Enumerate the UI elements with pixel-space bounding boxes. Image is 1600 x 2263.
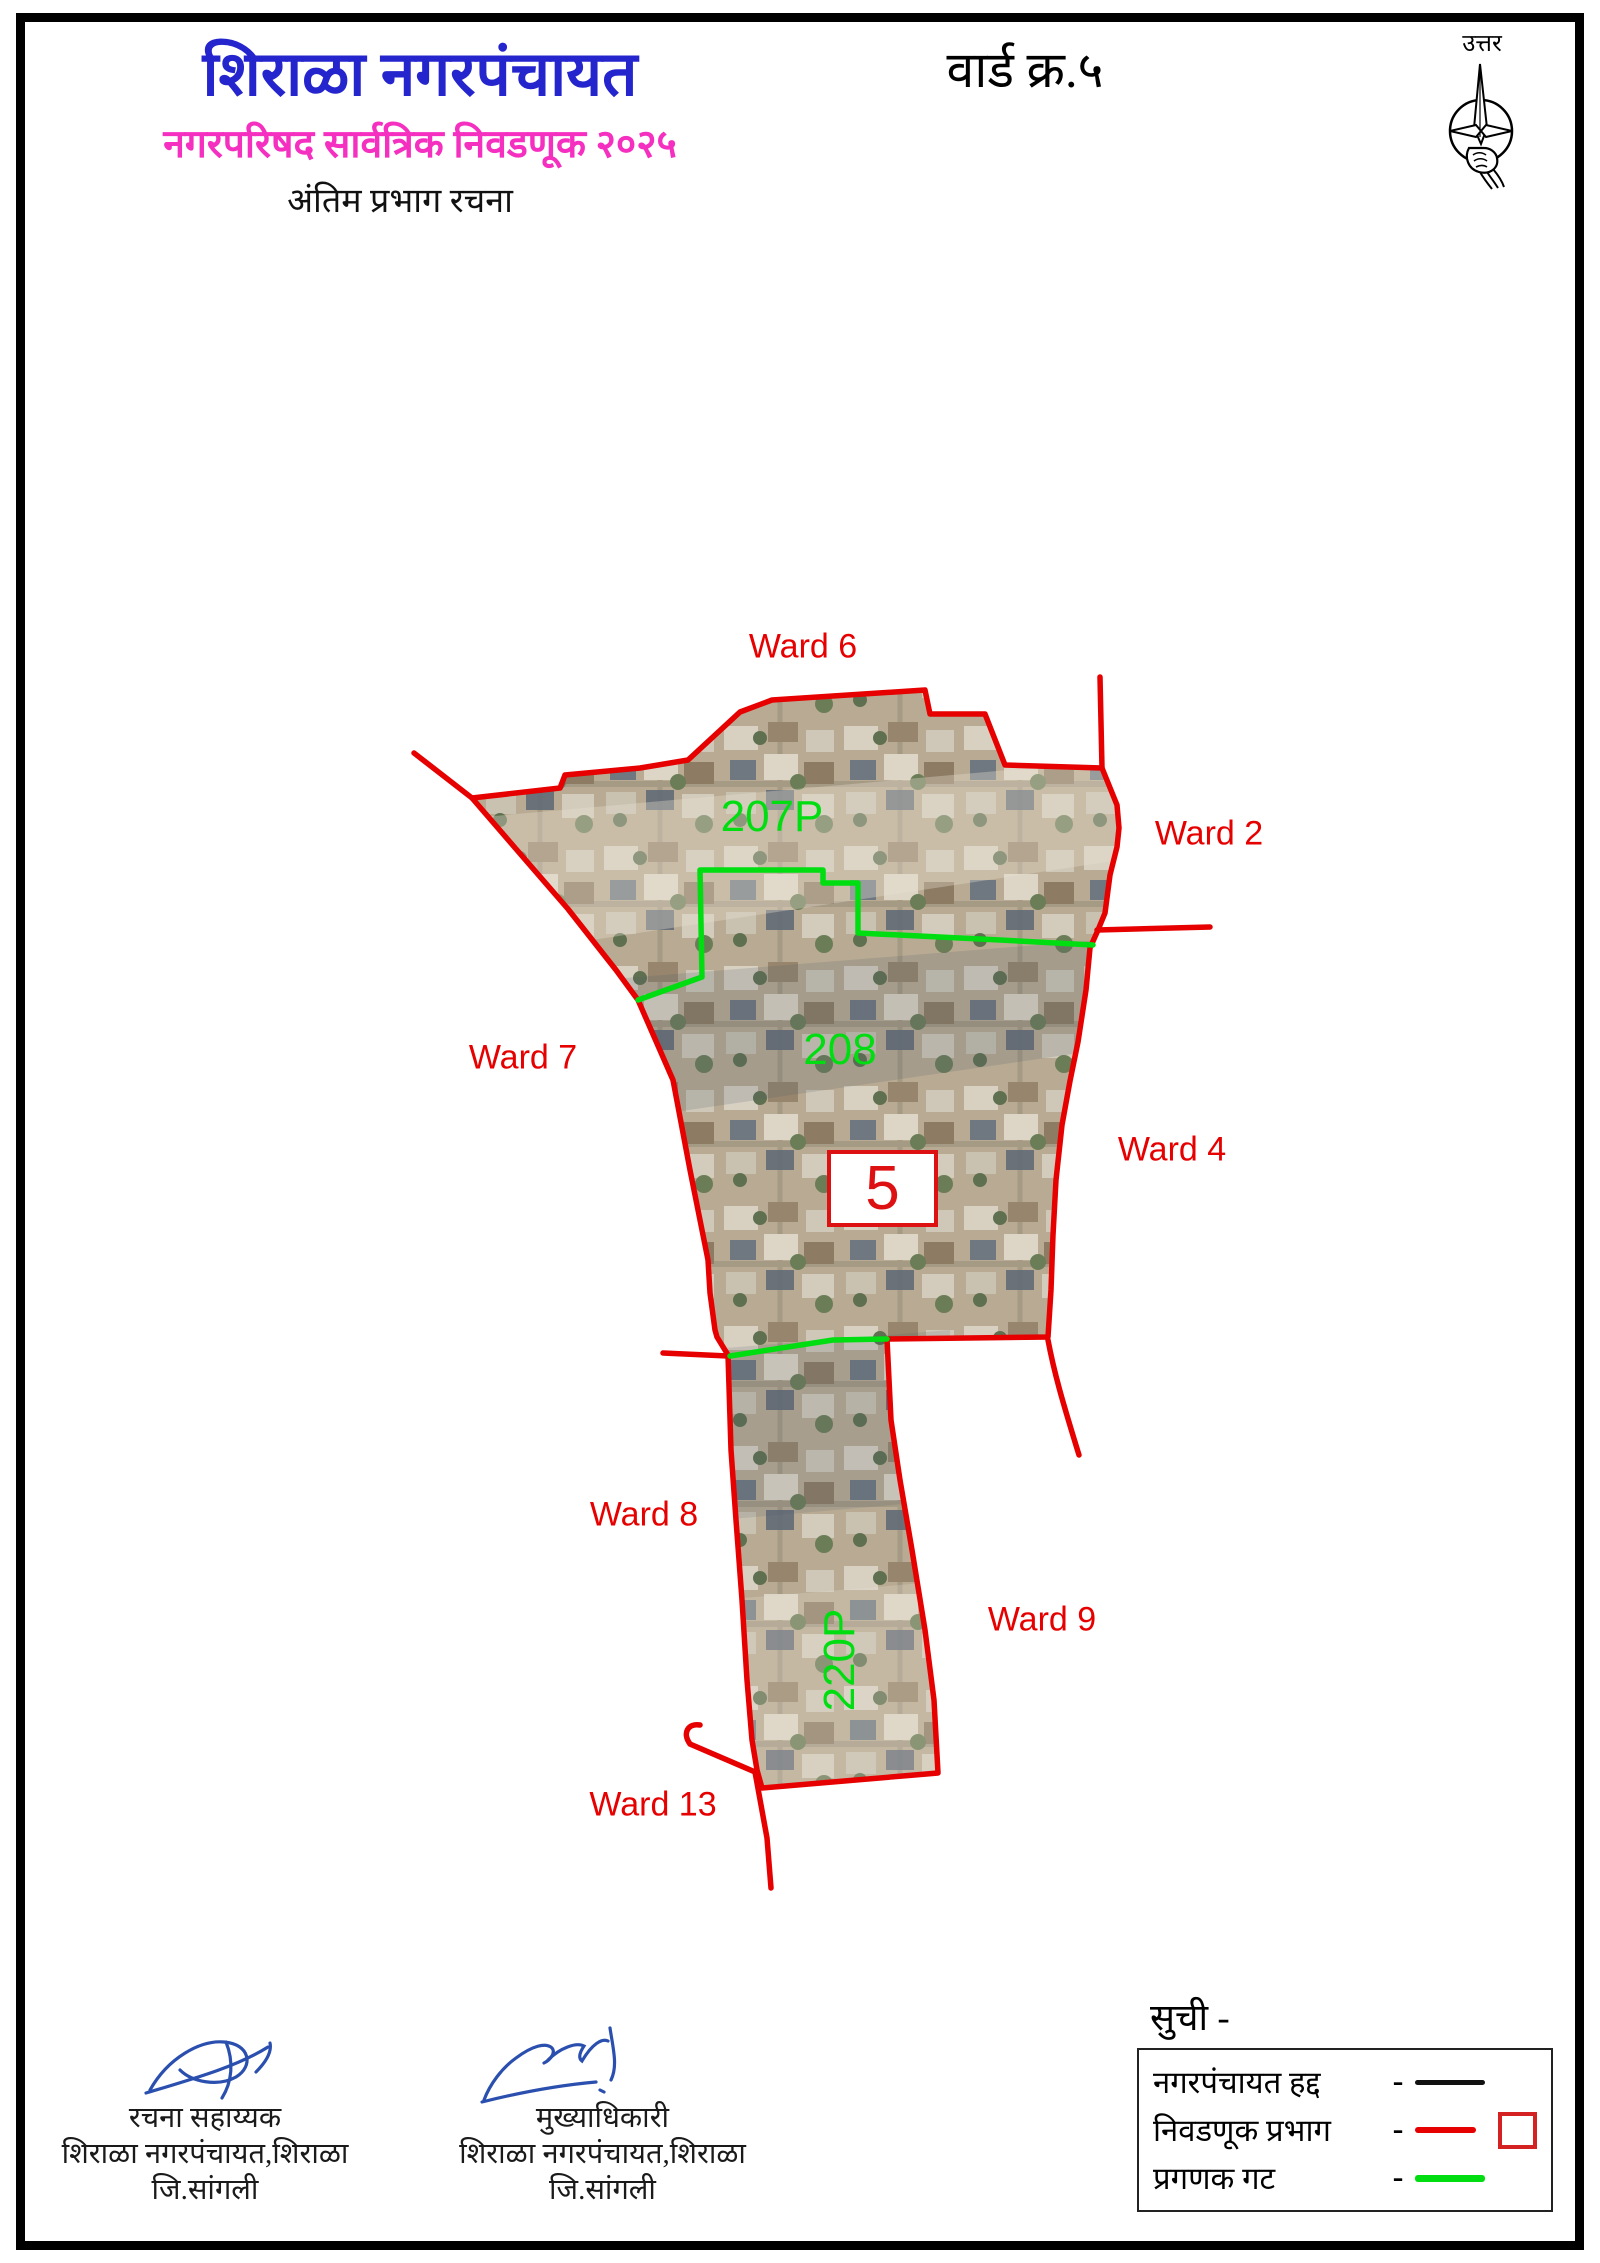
legend-label: नगरपंचायत हद्द (1153, 2061, 1381, 2103)
ward8-divider-line (663, 1353, 728, 1356)
signature-block-right: मुख्याधिकारी शिराळा नगरपंचायत,शिराळा जि.… (430, 2100, 775, 2208)
legend-row-enumeration-group: प्रगणक गट - (1153, 2156, 1537, 2200)
legend-label: निवडणूक प्रभाग (1153, 2109, 1381, 2151)
group-label-207p: 207P (721, 792, 824, 842)
ward-label-4: Ward 4 (1118, 1131, 1226, 1170)
green-line-swatch (1415, 2175, 1485, 2182)
group-label-220p: 220P (815, 1609, 865, 1712)
black-line-swatch (1415, 2080, 1485, 2085)
map-canvas (0, 0, 1600, 2263)
signature-ink-left (146, 2042, 270, 2098)
page-subtitle: नगरपरिषद सार्वत्रिक निवडणूक २०२५ (40, 116, 800, 169)
north-compass-icon (1450, 64, 1512, 189)
legend-dash: - (1381, 2111, 1415, 2150)
legend-title: सुची - (1150, 1990, 1230, 2041)
signature-block-left: रचना सहाय्यक शिराळा नगरपंचायत,शिराळा जि.… (40, 2100, 370, 2208)
signatory-org: शिराळा नगरपंचायत,शिराळा (430, 2136, 775, 2172)
legend-row-municipal-boundary: नगरपंचायत हद्द - (1153, 2060, 1537, 2104)
ward-label-7: Ward 7 (469, 1039, 577, 1078)
legend-box: नगरपंचायत हद्द - निवडणूक प्रभाग - प्रगणक… (1137, 2048, 1553, 2212)
ward6-ward2-divider-line (1100, 677, 1102, 768)
ward-label-2: Ward 2 (1155, 815, 1263, 854)
ward7-divider-line (414, 753, 472, 798)
ward-label-8: Ward 8 (590, 1496, 698, 1535)
page-subtitle-2: अंतिम प्रभाग रचना (160, 176, 640, 222)
legend-dash: - (1381, 2063, 1415, 2102)
group-label-208: 208 (803, 1025, 876, 1075)
ward-number-value: 5 (865, 1153, 899, 1224)
ward-label-13: Ward 13 (589, 1786, 716, 1825)
signatory-role: रचना सहाय्यक (40, 2100, 370, 2136)
legend-dash: - (1381, 2159, 1415, 2198)
signatory-role: मुख्याधिकारी (430, 2100, 775, 2136)
ward-label-6: Ward 6 (749, 628, 857, 667)
ward-number-box: 5 (827, 1150, 938, 1227)
ward4-ward9-divider-line (1048, 1340, 1079, 1455)
ward-label-9: Ward 9 (988, 1601, 1096, 1640)
signature-ink-right (482, 2028, 615, 2102)
signatory-district: जि.सांगली (40, 2172, 370, 2208)
red-square-swatch (1498, 2112, 1537, 2149)
page-title: शिराळा नगरपंचायत (90, 30, 750, 114)
signatory-district: जि.सांगली (430, 2172, 775, 2208)
ward-map-sheet: शिराळा नगरपंचायत नगरपरिषद सार्वत्रिक निव… (0, 0, 1600, 2263)
north-compass-label: उत्तर (1440, 26, 1524, 59)
legend-label: प्रगणक गट (1153, 2157, 1381, 2199)
ward2-ward4-divider-line (1097, 927, 1210, 930)
red-line-swatch (1415, 2127, 1476, 2133)
ward-number-heading: वार्ड क्र.५ (880, 34, 1170, 102)
legend-row-election-ward: निवडणूक प्रभाग - (1153, 2108, 1537, 2152)
signatory-org: शिराळा नगरपंचायत,शिराळा (40, 2136, 370, 2172)
